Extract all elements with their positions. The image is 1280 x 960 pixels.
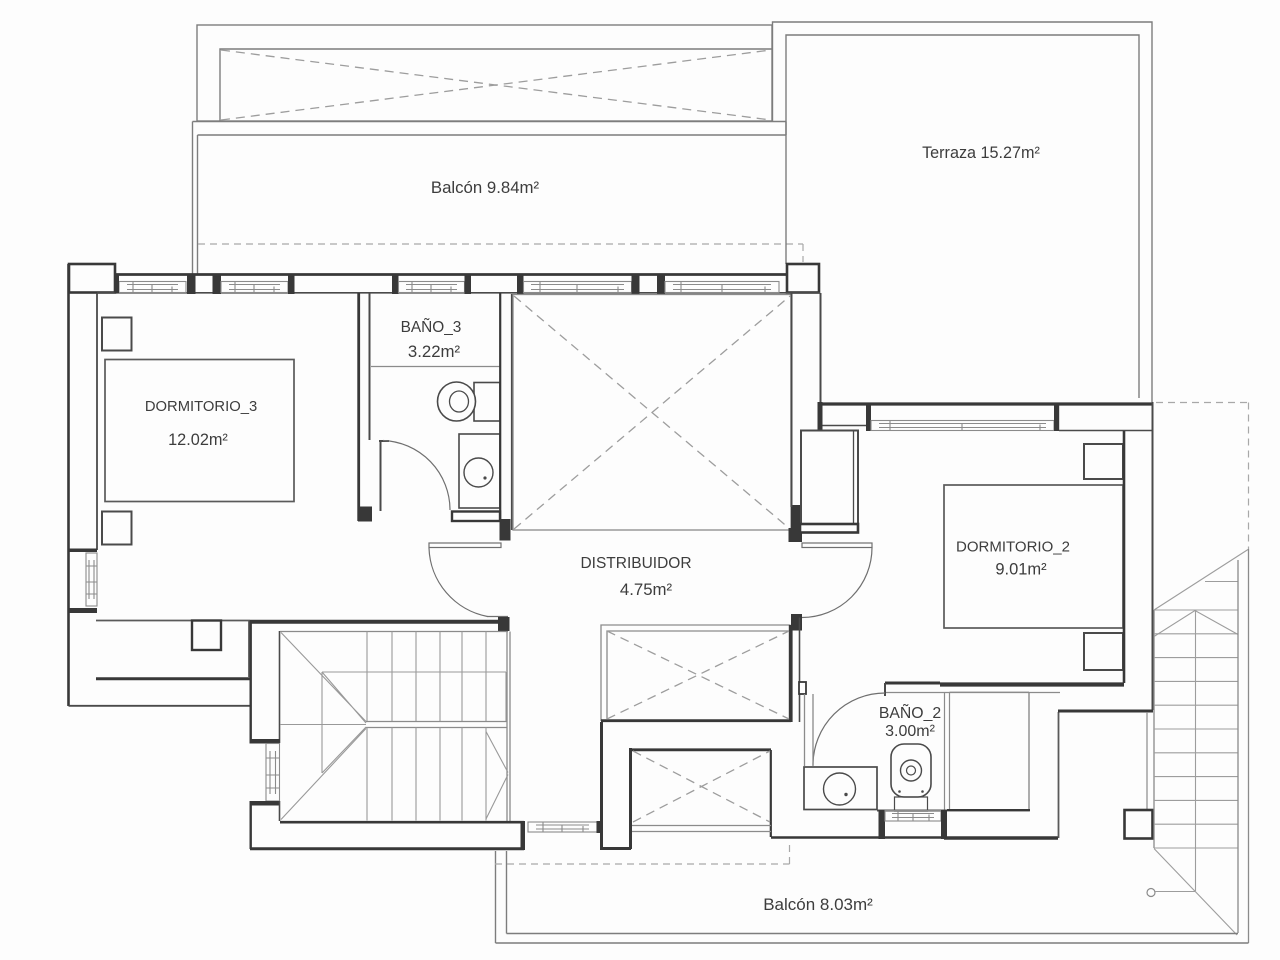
svg-text:DISTRIBUIDOR: DISTRIBUIDOR — [580, 555, 691, 572]
svg-text:3.22m²: 3.22m² — [408, 342, 461, 361]
svg-text:BAÑO_2: BAÑO_2 — [879, 702, 941, 722]
svg-text:BAÑO_3: BAÑO_3 — [401, 319, 462, 336]
svg-text:Balcón 9.84m²: Balcón 9.84m² — [431, 178, 540, 197]
svg-text:Terraza 15.27m²: Terraza 15.27m² — [922, 144, 1040, 162]
svg-text:Balcón 8.03m²: Balcón 8.03m² — [763, 895, 873, 914]
svg-text:DORMITORIO_3: DORMITORIO_3 — [145, 399, 257, 415]
svg-text:4.75m²: 4.75m² — [620, 580, 673, 599]
svg-text:12.02m²: 12.02m² — [168, 431, 228, 449]
svg-text:3.00m²: 3.00m² — [885, 723, 935, 740]
svg-text:9.01m²: 9.01m² — [995, 561, 1047, 579]
svg-text:DORMITORIO_2: DORMITORIO_2 — [956, 539, 1070, 556]
